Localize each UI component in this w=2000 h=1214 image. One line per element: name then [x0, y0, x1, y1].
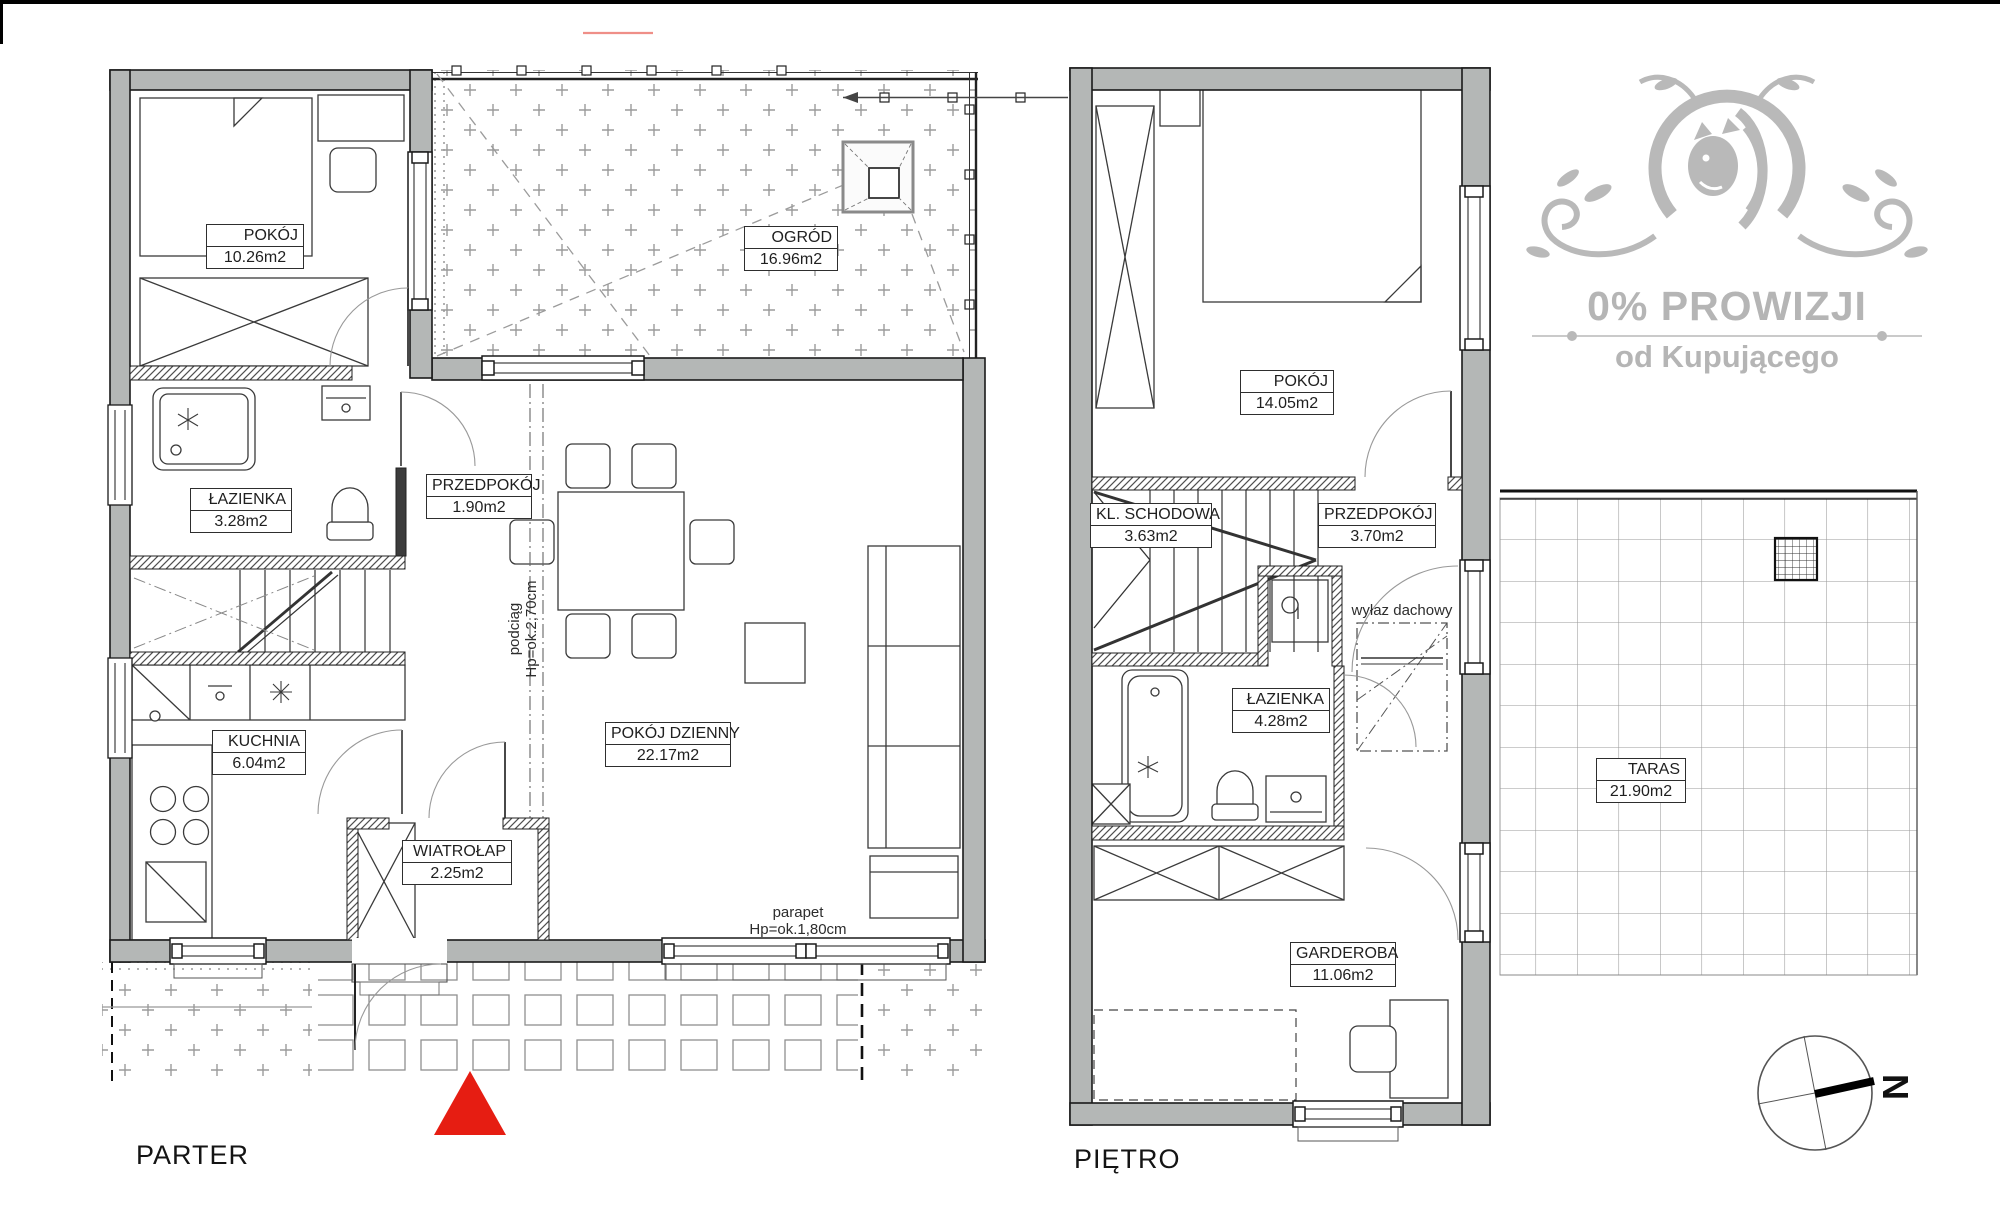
watermark-line2: od Kupującego	[1520, 339, 1934, 375]
room-area: 22.17m2	[606, 745, 730, 766]
room-name: ŁAZIENKA	[191, 489, 291, 511]
room-label-lazienka-pietro: ŁAZIENKA 4.28m2	[1232, 688, 1330, 733]
roof-hatch-annotation: wyłaz dachowy	[1337, 602, 1467, 619]
chair	[632, 614, 676, 658]
chair	[1350, 1026, 1396, 1072]
lion-logo	[1525, 75, 1929, 260]
sill-text-1: parapet	[718, 904, 878, 921]
flourish-right	[1760, 75, 1929, 260]
room-area: 11.06m2	[1291, 965, 1395, 986]
beam-text-1: podciąg	[506, 554, 523, 704]
room-name: PRZEDPOKÓJ	[1319, 504, 1435, 526]
room-area: 10.26m2	[207, 247, 303, 268]
room-name: PRZEDPOKÓJ	[427, 475, 531, 497]
window	[1293, 1101, 1403, 1141]
room-area: 4.28m2	[1233, 711, 1329, 732]
sofa	[868, 546, 960, 848]
room-label-ogrod: OGRÓD 16.96m2	[744, 226, 838, 271]
roof-hatch	[1357, 623, 1447, 751]
floor-title-parter: PARTER	[136, 1140, 249, 1171]
terrace-drain	[1775, 538, 1817, 580]
room-label-pokoj-pietro: POKÓJ 14.05m2	[1240, 370, 1334, 415]
hob-burner	[151, 787, 176, 812]
window	[1460, 186, 1490, 350]
room-label-lazienka-parter: ŁAZIENKA 3.28m2	[190, 488, 292, 533]
room-label-kl-schodowa: KL. SCHODOWA 3.63m2	[1090, 503, 1212, 548]
room-area: 21.90m2	[1597, 781, 1685, 802]
beam-text-2: Hp=ok.2,70cm	[523, 554, 540, 704]
flourish-left	[1525, 75, 1694, 260]
room-name: GARDEROBA	[1291, 943, 1395, 965]
room-label-kuchnia: KUCHNIA 6.04m2	[212, 730, 306, 775]
room-name: POKÓJ	[1241, 371, 1333, 393]
extractor-icon	[270, 681, 292, 703]
top-border	[0, 0, 2000, 4]
room-label-pokoj-parter: POKÓJ 10.26m2	[206, 224, 304, 269]
room-area: 3.28m2	[191, 511, 291, 532]
window	[108, 658, 132, 758]
left-border-tick	[0, 0, 3, 44]
shaft-box	[1272, 580, 1328, 642]
chair	[566, 614, 610, 658]
room-area: 3.70m2	[1319, 526, 1435, 547]
dining-table	[558, 492, 684, 610]
toilet	[327, 522, 373, 540]
chair	[566, 444, 610, 488]
low-ceiling-zone	[1094, 1010, 1296, 1100]
window	[482, 356, 644, 380]
chair	[690, 520, 734, 564]
chair	[330, 148, 376, 192]
room-label-wiatrolap: WIATROŁAP 2.25m2	[402, 840, 512, 885]
room-area: 14.05m2	[1241, 393, 1333, 414]
room-label-przedpokoj-pietro: PRZEDPOKÓJ 3.70m2	[1318, 503, 1436, 548]
desk	[318, 95, 404, 141]
garden-well	[843, 142, 913, 212]
armchair	[870, 856, 958, 918]
room-area: 2.25m2	[403, 863, 511, 884]
room-area: 1.90m2	[427, 497, 531, 518]
parter-stairs	[134, 570, 390, 655]
floor-title-pietro: PIĘTRO	[1074, 1144, 1181, 1175]
room-name: KUCHNIA	[213, 731, 305, 753]
pietro-plan	[1070, 68, 1917, 1141]
nightstand	[1160, 86, 1200, 126]
room-name: OGRÓD	[745, 227, 837, 249]
room-label-przedpokoj-parter: PRZEDPOKÓJ 1.90m2	[426, 474, 532, 519]
room-label-taras: TARAS 21.90m2	[1596, 758, 1686, 803]
compass-needle	[1815, 1081, 1874, 1094]
beam-annotation: podciąg Hp=ok.2,70cm	[506, 554, 540, 704]
room-name: KL. SCHODOWA	[1091, 504, 1211, 526]
compass-rose	[1758, 1036, 1874, 1150]
floorplan-page: POKÓJ 10.26m2 OGRÓD 16.96m2 ŁAZIENKA 3.2…	[0, 0, 2000, 1214]
parter-plan	[102, 66, 1068, 1082]
room-name: TARAS	[1597, 759, 1685, 781]
room-name: POKÓJ DZIENNY	[606, 723, 730, 745]
compass-north-letter: N	[1874, 1074, 1916, 1100]
window	[1460, 843, 1490, 942]
toilet	[1212, 804, 1258, 820]
terrace-area	[1500, 491, 1917, 975]
pietro-doors	[1344, 391, 1458, 940]
floorplan-drawing	[0, 0, 2000, 1214]
room-label-garderoba: GARDEROBA 11.06m2	[1290, 942, 1396, 987]
coffee-table	[745, 623, 805, 683]
watermark-line1: 0% PROWIZJI	[1520, 283, 1934, 330]
window	[108, 405, 132, 505]
window	[408, 152, 432, 310]
chair	[632, 444, 676, 488]
room-area: 6.04m2	[213, 753, 305, 774]
room-area: 16.96m2	[745, 249, 837, 270]
washbasin	[322, 386, 370, 420]
pietro-windows	[1293, 186, 1490, 1141]
room-name: POKÓJ	[207, 225, 303, 247]
kitchen-counter	[132, 665, 405, 720]
garden-area	[432, 66, 1068, 358]
desk	[1390, 1000, 1448, 1098]
room-area: 3.63m2	[1091, 526, 1211, 547]
room-name: WIATROŁAP	[403, 841, 511, 863]
sill-text-2: Hp=ok.1,80cm	[718, 921, 878, 938]
room-label-pokoj-dzienny: POKÓJ DZIENNY 22.17m2	[605, 722, 731, 767]
bed	[1203, 86, 1421, 302]
sill-annotation: parapet Hp=ok.1,80cm	[718, 904, 878, 938]
room-name: ŁAZIENKA	[1233, 689, 1329, 711]
